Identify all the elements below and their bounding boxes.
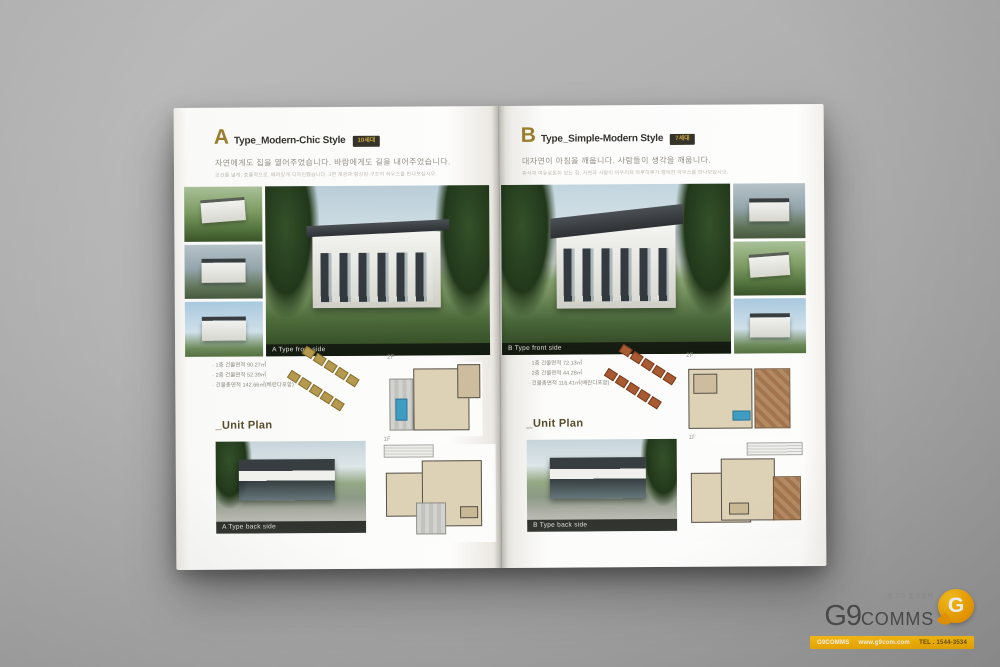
page-b-type: B Type_Simple-Modern Style 7세대 대자연이 아침을 … (499, 104, 827, 568)
speech-bubble-icon: G (938, 589, 974, 623)
photo-caption-a-back: A Type back side (216, 521, 366, 534)
tree-foliage (265, 185, 320, 318)
bar-telephone: TEL . 1544-3534 (919, 640, 967, 646)
bar-brand: G9COMMS (817, 640, 849, 646)
floor-label-1f: 1F (689, 434, 805, 441)
floor-plan-2f-a: 2F (387, 354, 482, 437)
photo-caption-b-back: B Type back side (527, 519, 677, 532)
headline-b: 대자연이 아침을 깨웁니다. 사람들이 생각을 깨웁니다. (522, 155, 711, 167)
site-plan-diagram-b (600, 355, 670, 423)
households-badge-b: 7세대 (670, 134, 694, 145)
plan-deck (773, 476, 801, 520)
house-render-b (556, 225, 676, 309)
logo-tagline: 광고가 필요할땐 (810, 591, 934, 600)
floor-plan-drawing (686, 360, 792, 435)
floor-plan-1f-a: 1F (384, 436, 497, 543)
floor-label-2f: 2F (686, 352, 792, 359)
roof (306, 220, 449, 239)
headline-a: 자연에게도 집을 열어주었습니다. 바람에게도 길을 내어주었습니다. (215, 156, 451, 168)
site-unit (346, 374, 360, 388)
households-badge-a: 10세대 (353, 136, 381, 147)
house-thumbnail (184, 186, 262, 241)
house-thumbnail (733, 241, 805, 296)
thumbnail-column-b (733, 183, 806, 353)
window-wall (320, 253, 433, 303)
plan-pool (395, 399, 407, 421)
plan-deck (754, 368, 790, 428)
g9comms-logo: 광고가 필요할땐 G9COMMS G G9COMMS www.g9com.com… (810, 591, 974, 649)
plan-pool (732, 410, 750, 420)
back-photo-a: A Type back side (216, 441, 367, 534)
site-unit-row (287, 370, 345, 412)
type-letter-b: B (521, 126, 536, 146)
tree-foliage (501, 184, 557, 317)
bar-website: www.g9com.com (859, 640, 910, 646)
house-render-back-a (238, 459, 334, 500)
tree-foliage (641, 439, 678, 507)
logo-g9-text: G9 (824, 600, 861, 632)
plan-furniture (729, 502, 749, 514)
thumbnail-column-a (184, 186, 263, 356)
front-photo-b: B Type front side (501, 184, 731, 355)
plan-patio (416, 502, 446, 534)
roof (550, 204, 683, 239)
subline-b: 휴식과 여유로움이 있는 집, 자연과 사람이 어우러져 하루하루가 행복한 하… (522, 169, 728, 177)
plan-room (693, 374, 717, 394)
house-render-small (749, 202, 789, 222)
unit-plan-heading-a: _Unit Plan (216, 419, 273, 431)
floor-plan-2f-b: 2F (686, 352, 792, 435)
logo-contact-bar: G9COMMS www.g9com.com TEL . 1544-3534 (810, 636, 974, 649)
site-unit (648, 396, 662, 410)
house-thumbnail (734, 298, 806, 353)
house-thumbnail (185, 302, 263, 357)
subline-a: 공간을 넓게, 효율적으로, 배려있게 디자인했습니다. 3면 채광과 향상된 … (215, 170, 437, 178)
front-photo-a: A Type front side (265, 185, 490, 356)
house-render-a (312, 231, 440, 308)
bubble-g-letter: G (938, 589, 974, 623)
scene-background: A Type_Modern-Chic Style 10세대 자연에게도 집을 열… (0, 0, 1000, 667)
unit-plan-heading-b: _Unit Plan (526, 417, 583, 429)
floor-label-1f: 1F (384, 436, 496, 443)
logo-wordmark: G9COMMS G (810, 601, 974, 633)
back-photo-b: B Type back side (527, 439, 678, 532)
site-unit (331, 398, 345, 412)
plan-room (457, 364, 480, 398)
floor-plan-1f-b: 1F (689, 434, 806, 541)
house-render-small (202, 263, 246, 283)
page-a-type: A Type_Modern-Chic Style 10세대 자연에게도 집을 열… (174, 106, 502, 570)
house-render-back-b (549, 458, 645, 499)
window-wall (564, 248, 669, 302)
house-thumbnail (733, 183, 805, 238)
page-b-header: B Type_Simple-Modern Style 7세대 (521, 125, 695, 146)
house-thumbnail (184, 244, 262, 299)
site-unit (663, 372, 677, 386)
house-render-small (201, 200, 246, 223)
floor-plan-drawing (689, 442, 806, 541)
type-letter-a: A (214, 128, 229, 148)
plan-elevation-sketch (384, 444, 434, 457)
floor-label-2f: 2F (387, 354, 482, 361)
logo-comms-text: COMMS (861, 609, 934, 629)
site-plan-diagram-a (283, 357, 353, 425)
plan-elevation-sketch (747, 442, 803, 455)
house-render-small (749, 255, 791, 278)
floor-plan-drawing (384, 444, 497, 543)
page-a-header: A Type_Modern-Chic Style 10세대 (214, 127, 381, 148)
plan-furniture (460, 506, 478, 518)
gallery-b: B Type front side (501, 183, 806, 355)
type-title-a: Type_Modern-Chic Style (234, 134, 346, 148)
floor-plan-drawing (387, 362, 482, 437)
tree-foliage (435, 185, 490, 317)
house-render-small (202, 320, 246, 340)
brochure-spread: A Type_Modern-Chic Style 10세대 자연에게도 집을 열… (174, 104, 827, 570)
gallery-a: A Type front side (184, 185, 490, 357)
type-title-b: Type_Simple-Modern Style (541, 132, 663, 146)
site-unit-row (604, 368, 662, 410)
house-render-small (750, 317, 790, 337)
